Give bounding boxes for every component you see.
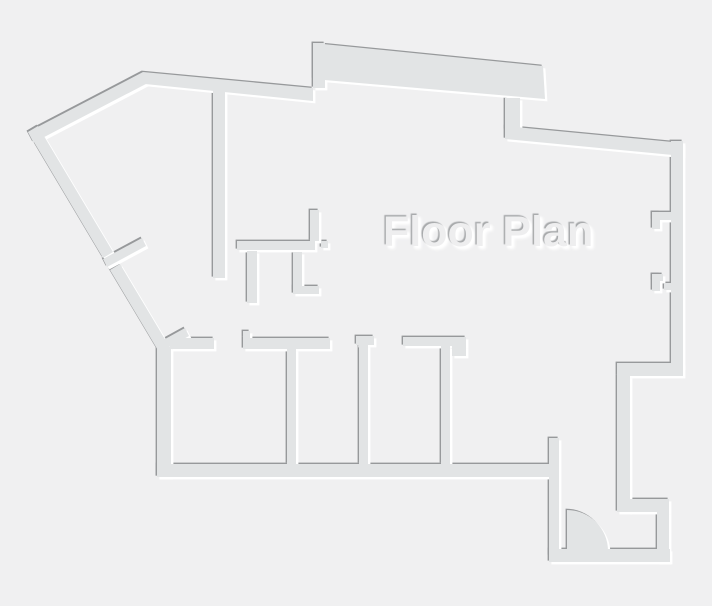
floor-plan-svg: [0, 0, 712, 606]
walls-fill-layer: [28, 43, 683, 562]
plan-title: Floor Plan: [383, 211, 593, 254]
floor-plan-canvas: Floor Plan: [0, 0, 712, 606]
walls-shadow-layer: [27, 42, 682, 561]
walls-highlight-layer: [30, 45, 685, 564]
